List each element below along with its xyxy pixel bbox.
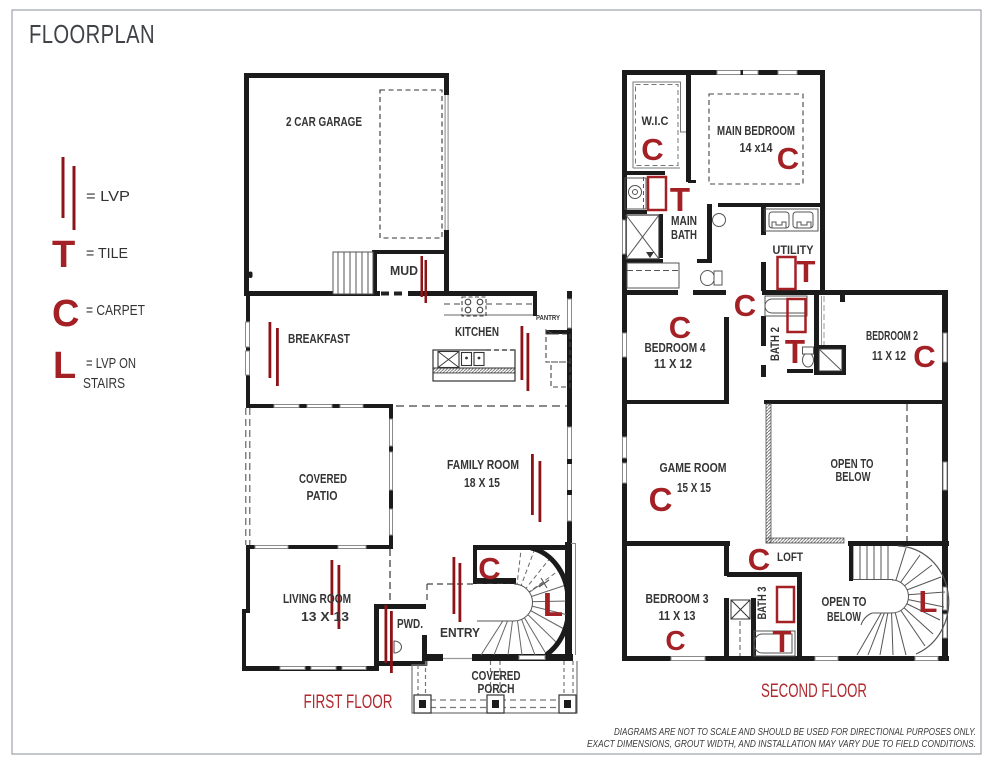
svg-text:BEDROOM 2: BEDROOM 2 [866,328,918,343]
svg-text:C: C [649,481,673,518]
svg-text:11 X 12: 11 X 12 [872,348,906,363]
svg-text:FLOORPLAN: FLOORPLAN [29,21,155,49]
svg-text:FAMILY ROOM: FAMILY ROOM [447,457,519,472]
svg-text:ENTRY: ENTRY [440,625,480,640]
svg-text:15 X 15: 15 X 15 [677,480,711,495]
svg-text:FIRST FLOOR: FIRST FLOOR [304,692,393,713]
svg-text:C: C [913,339,935,374]
svg-text:BATH: BATH [671,227,697,242]
svg-text:W.I.C: W.I.C [642,114,669,128]
svg-text:14 x14: 14 x14 [740,140,774,155]
svg-text:LIVING ROOM: LIVING ROOM [283,591,351,606]
svg-text:L: L [919,584,938,619]
svg-text:= TILE: = TILE [86,245,128,262]
svg-text:13 X 13: 13 X 13 [301,609,349,624]
svg-text:11 X 13: 11 X 13 [659,608,696,623]
svg-text:C: C [478,551,500,586]
svg-text:T: T [773,624,792,659]
svg-text:DIAGRAMS ARE NOT TO SCALE AND: DIAGRAMS ARE NOT TO SCALE AND SHOULD BE … [614,727,976,738]
svg-text:COVERED: COVERED [299,471,347,486]
svg-text:MAIN BEDROOM: MAIN BEDROOM [717,123,795,138]
svg-text:SECOND FLOOR: SECOND FLOOR [761,681,867,702]
svg-text:BATH 2: BATH 2 [768,327,782,361]
svg-text:BATH 3: BATH 3 [755,586,769,619]
svg-text:C: C [669,310,691,345]
svg-text:T: T [797,254,816,289]
svg-text:T: T [52,234,75,276]
svg-text:C: C [52,293,79,335]
svg-text:GAME ROOM: GAME ROOM [660,460,727,475]
svg-text:PORCH: PORCH [478,681,515,696]
svg-text:OPEN TO: OPEN TO [822,594,867,609]
svg-text:18 X 15: 18 X 15 [464,475,500,490]
svg-text:C: C [641,132,663,167]
svg-text:PWD.: PWD. [397,616,423,631]
svg-text:C: C [748,542,770,577]
svg-text:BELOW: BELOW [827,609,862,624]
svg-text:C: C [734,288,756,323]
svg-text:BELOW: BELOW [836,469,872,484]
svg-text:EXACT DIMENSIONS, GROUT WIDTH,: EXACT DIMENSIONS, GROUT WIDTH, AND INSTA… [587,739,976,750]
svg-text:L: L [53,345,76,387]
svg-text:= CARPET: = CARPET [86,302,145,319]
svg-text:PANTRY: PANTRY [536,315,560,322]
svg-text:STAIRS: STAIRS [83,375,125,392]
svg-text:LOFT: LOFT [777,550,804,564]
svg-text:KITCHEN: KITCHEN [455,324,499,339]
svg-text:11 X 12: 11 X 12 [654,356,692,371]
svg-text:L: L [543,586,563,623]
svg-text:BREAKFAST: BREAKFAST [288,331,350,346]
svg-text:BEDROOM 3: BEDROOM 3 [646,591,709,606]
svg-text:= LVP ON: = LVP ON [86,355,136,372]
svg-text:T: T [670,181,690,218]
svg-text:C: C [665,625,685,656]
svg-text:2 CAR GARAGE: 2 CAR GARAGE [286,114,362,129]
svg-text:C: C [777,141,799,176]
svg-text:PATIO: PATIO [307,488,338,503]
svg-text:= LVP: = LVP [86,188,130,205]
svg-text:T: T [785,333,805,370]
svg-text:MUD: MUD [390,263,418,278]
